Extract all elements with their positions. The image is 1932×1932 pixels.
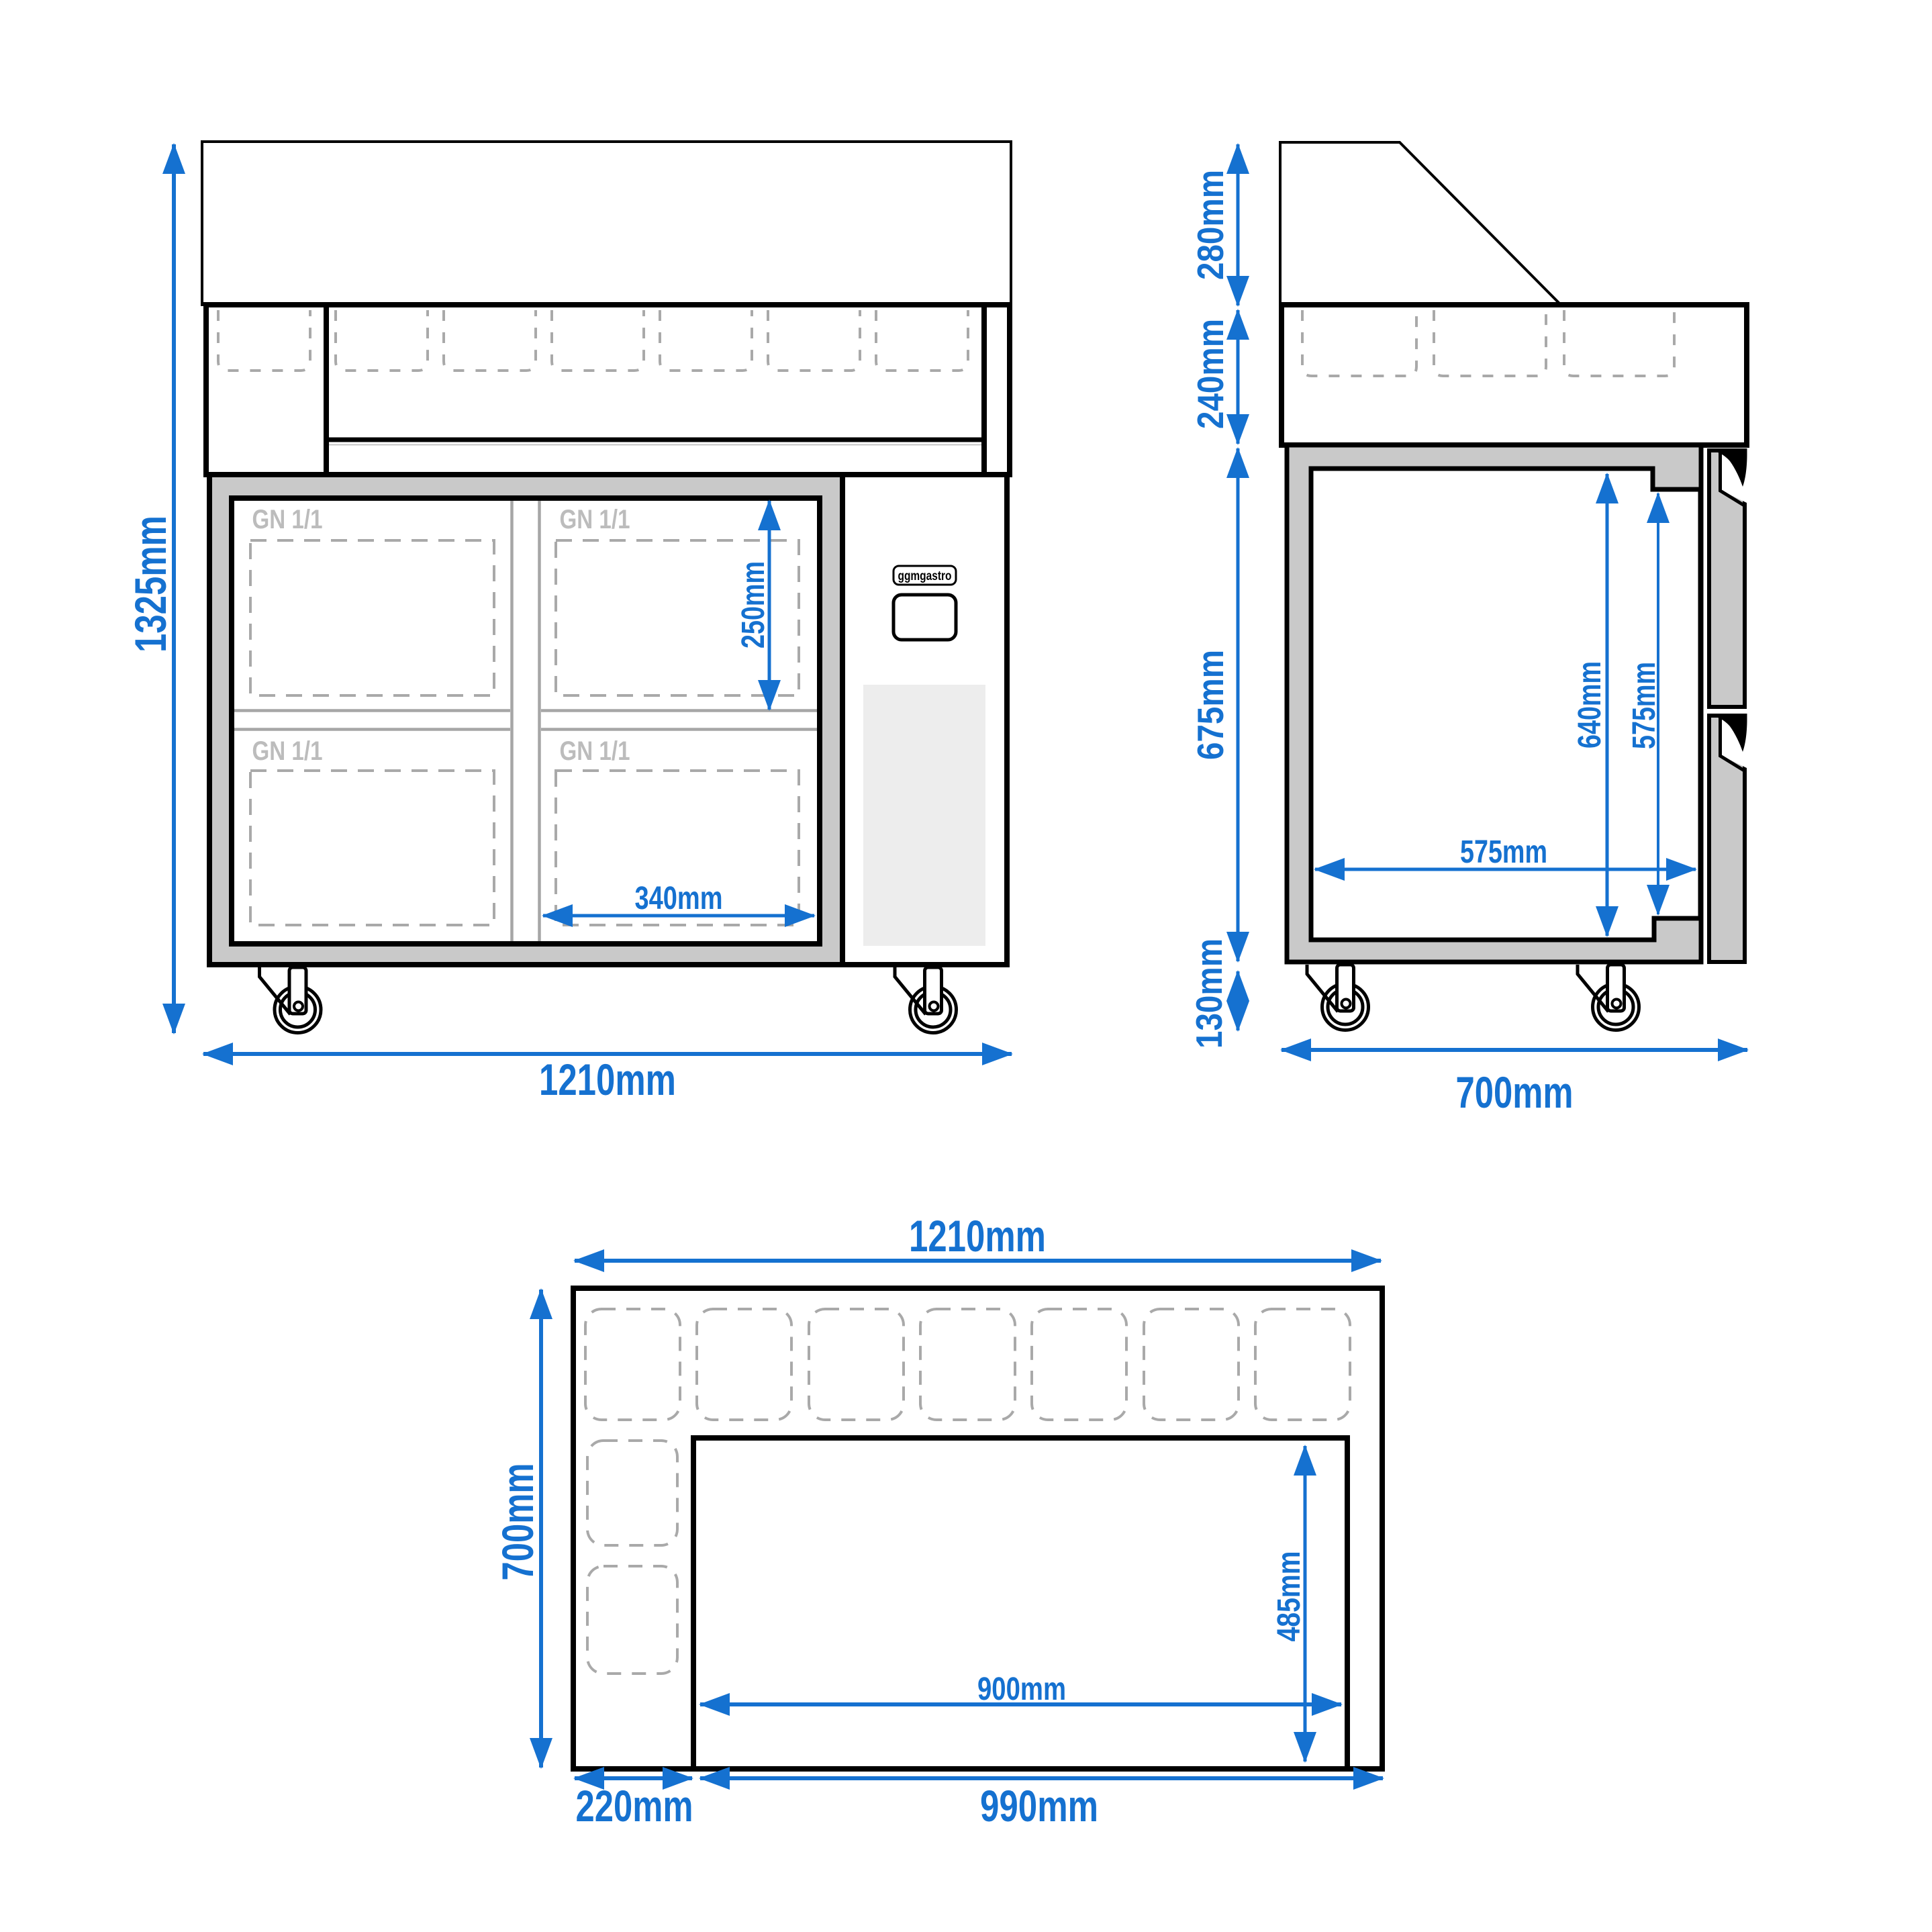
svg-text:575mm: 575mm — [1460, 834, 1547, 870]
svg-text:900mm: 900mm — [977, 1672, 1066, 1707]
svg-text:130mm: 130mm — [1188, 938, 1230, 1049]
svg-text:485mm: 485mm — [1271, 1551, 1307, 1642]
svg-text:575mm: 575mm — [1627, 662, 1662, 749]
svg-text:640mm: 640mm — [1572, 661, 1608, 748]
svg-text:240mm: 240mm — [1190, 319, 1231, 429]
svg-text:ggmgastro: ggmgastro — [898, 569, 952, 583]
svg-text:1210mm: 1210mm — [909, 1211, 1046, 1261]
svg-text:GN 1/1: GN 1/1 — [560, 505, 630, 534]
svg-text:1210mm: 1210mm — [539, 1055, 676, 1104]
svg-text:GN 1/1: GN 1/1 — [560, 736, 630, 766]
svg-text:700mm: 700mm — [493, 1463, 542, 1581]
svg-text:250mm: 250mm — [736, 561, 771, 648]
svg-text:990mm: 990mm — [980, 1781, 1098, 1831]
svg-text:GN 1/1: GN 1/1 — [252, 736, 323, 766]
svg-text:220mm: 220mm — [576, 1781, 693, 1831]
svg-text:280mm: 280mm — [1190, 170, 1231, 280]
svg-text:340mm: 340mm — [635, 881, 723, 916]
svg-text:675mm: 675mm — [1190, 650, 1231, 760]
svg-text:1325mm: 1325mm — [126, 516, 175, 653]
svg-text:700mm: 700mm — [1456, 1067, 1574, 1117]
svg-text:GN 1/1: GN 1/1 — [252, 505, 323, 534]
